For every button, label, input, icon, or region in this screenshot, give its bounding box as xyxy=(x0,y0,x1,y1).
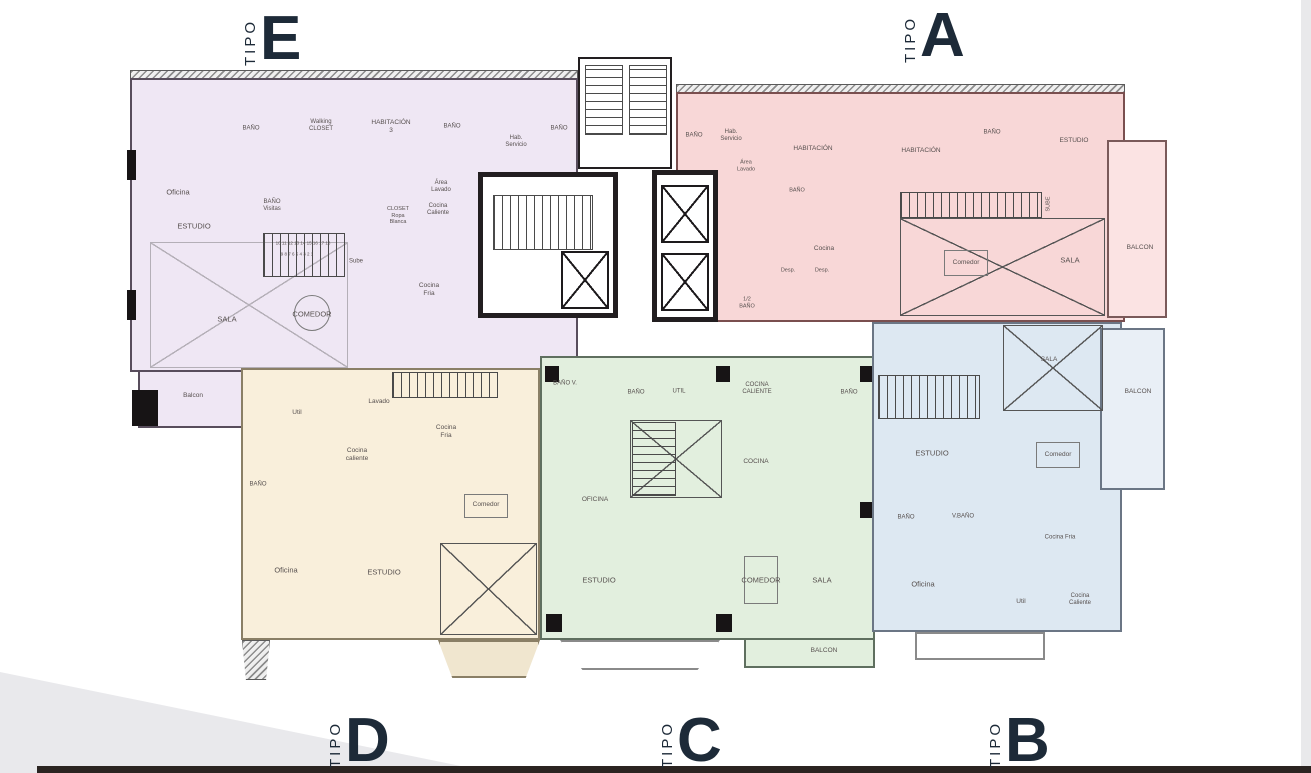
room-label: Oficina xyxy=(274,566,297,575)
room-label: Lavado xyxy=(368,398,389,406)
room-label: Comedor xyxy=(953,259,980,267)
unit-type-label-a: TIPO A xyxy=(903,3,964,63)
room-label: Comedor xyxy=(1045,451,1072,459)
tipo-word: TIPO xyxy=(660,721,675,768)
room-label: Desp. xyxy=(815,268,829,275)
unit-type-label-b: TIPO B xyxy=(988,706,1049,768)
room-label: Cocina Fria xyxy=(436,424,456,440)
room-label: OFICINA xyxy=(582,496,608,504)
room-label: ESTUDIO xyxy=(1060,137,1089,145)
room-label: BAÑO xyxy=(897,514,914,521)
room-label: COMEDOR xyxy=(741,576,780,585)
room-label: Hab. Servicio xyxy=(720,129,741,143)
unit-type-label-d: TIPO D xyxy=(328,706,389,768)
room-label: Sube xyxy=(349,258,363,265)
room-label: Cocina xyxy=(814,245,834,253)
room-label: Balcon xyxy=(183,392,203,400)
room-label: Comedor xyxy=(473,501,500,509)
room-label: BAÑO xyxy=(249,481,266,488)
tipo-word: TIPO xyxy=(903,16,918,63)
room-label: CLOSET Ropa Blanca xyxy=(387,206,409,226)
room-label: BAÑO xyxy=(242,125,259,132)
room-label: Util xyxy=(292,409,301,417)
room-label: Oficina xyxy=(166,188,189,197)
room-label: BAÑO Visitas xyxy=(263,199,281,213)
tipo-letter: A xyxy=(920,10,964,63)
room-label: Cocina Fria xyxy=(1045,534,1076,541)
room-label: 9 8 7 6 5 4 3 2 1 xyxy=(281,251,314,256)
room-label: Cocina Fria xyxy=(419,282,439,298)
unit-type-label-e: TIPO E xyxy=(243,6,300,66)
room-label: ESTUDIO xyxy=(177,222,210,231)
tipo-letter: D xyxy=(345,715,389,768)
room-label: Cocina Caliente xyxy=(427,203,449,217)
room-label: SALA xyxy=(1041,356,1058,364)
tipo-word: TIPO xyxy=(328,721,343,768)
room-label: BAÑO xyxy=(550,125,567,132)
room-label: Oficina xyxy=(911,580,934,589)
room-label: ESTUDIO xyxy=(367,568,400,577)
room-label: BALCON xyxy=(811,647,838,655)
room-label: Util xyxy=(1016,598,1025,606)
room-label: BAÑO xyxy=(983,129,1000,136)
room-label: COCINA xyxy=(743,458,768,466)
room-label: Desp. xyxy=(781,268,795,275)
room-label: SUBE xyxy=(1046,197,1053,212)
room-label: BAÑO xyxy=(627,389,644,396)
room-label: COCINA CALIENTE xyxy=(742,382,771,396)
room-label: BAÑO V. xyxy=(553,380,577,387)
room-label: Cocina Caliente xyxy=(1069,593,1091,607)
room-label: SALA xyxy=(812,576,831,585)
room-label: SALA xyxy=(1060,256,1079,265)
tipo-word: TIPO xyxy=(988,721,1003,768)
room-label: Cocina caliente xyxy=(346,447,368,463)
room-label: ESTUDIO xyxy=(582,576,615,585)
room-labels-layer: OficinaBAÑOWalking CLOSETHABITACIÓN 3BAÑ… xyxy=(0,0,1311,773)
room-label: 1/2 BAÑO xyxy=(739,296,755,309)
tipo-letter: C xyxy=(677,715,721,768)
unit-type-label-c: TIPO C xyxy=(660,706,721,768)
room-label: Hab. Servicio xyxy=(505,135,526,149)
room-label: BAÑO xyxy=(840,389,857,396)
room-label: HABITACIÓN xyxy=(901,147,940,155)
room-label: COMEDOR xyxy=(292,310,331,319)
room-label: BAÑO xyxy=(685,132,702,139)
room-label: 10 11 12 13 14 15 16 17 18 xyxy=(276,240,331,245)
room-label: Área Lavado xyxy=(737,159,755,172)
room-label: BALCON xyxy=(1125,388,1152,396)
room-label: Área Lavado xyxy=(431,180,451,194)
room-label: SALA xyxy=(217,315,236,324)
floor-plan-canvas: OficinaBAÑOWalking CLOSETHABITACIÓN 3BAÑ… xyxy=(0,0,1311,773)
room-label: BAÑO xyxy=(789,188,805,195)
room-label: V.BAÑO xyxy=(952,513,974,520)
room-label: UTIL xyxy=(672,388,685,395)
room-label: BAÑO xyxy=(443,123,460,130)
room-label: HABITACIÓN 3 xyxy=(371,119,410,135)
tipo-letter: B xyxy=(1005,715,1049,768)
room-label: BALCON xyxy=(1127,244,1154,252)
tipo-word: TIPO xyxy=(243,19,258,66)
tipo-letter: E xyxy=(260,13,300,66)
room-label: ESTUDIO xyxy=(915,449,948,458)
room-label: Walking CLOSET xyxy=(309,119,333,133)
room-label: HABITACIÓN xyxy=(793,145,832,153)
